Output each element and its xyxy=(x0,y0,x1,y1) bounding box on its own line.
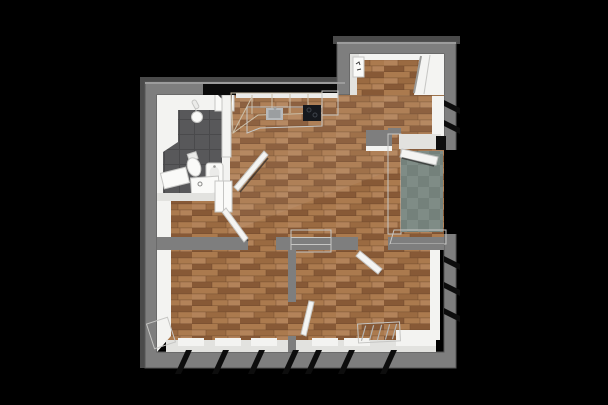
connecting-doorway xyxy=(288,302,296,336)
kitchen-sink-basin xyxy=(269,110,281,118)
balcony-opening xyxy=(444,150,458,234)
wall-cap-highlight-nook xyxy=(337,42,456,44)
room-bottom-left-floor xyxy=(166,250,288,344)
wall-cap-highlight xyxy=(145,82,345,84)
floorplan-svg xyxy=(0,0,608,405)
balcony-door-frame xyxy=(399,134,441,149)
balcony-west-wall-cap xyxy=(388,128,401,134)
floorplan-render xyxy=(0,0,608,405)
corner-sill xyxy=(396,330,436,346)
dividing-wall-lower xyxy=(288,336,296,352)
sink-faucet-icon xyxy=(213,165,216,168)
room-right-doorway xyxy=(358,237,388,250)
balcony-sill-wall xyxy=(390,244,444,250)
room-left-doorway xyxy=(248,237,276,250)
east-sill-lower xyxy=(430,250,440,340)
dividing-wall-upper xyxy=(288,250,296,302)
window-sill xyxy=(344,338,370,346)
electrical-panel xyxy=(353,57,364,77)
entry-nook xyxy=(350,54,444,95)
window-sill xyxy=(178,338,204,346)
kitchen-faucet-icon xyxy=(274,107,277,110)
cooktop xyxy=(303,105,321,121)
window-sill xyxy=(312,338,338,346)
kitchen-backsplash xyxy=(236,93,338,98)
shower-drain xyxy=(192,112,203,123)
window-sill xyxy=(251,338,277,346)
balcony-frame-shadow xyxy=(436,136,446,150)
window-sill xyxy=(215,338,241,346)
bathroom-east-wall xyxy=(222,95,231,157)
east-sill-upper xyxy=(432,96,444,138)
